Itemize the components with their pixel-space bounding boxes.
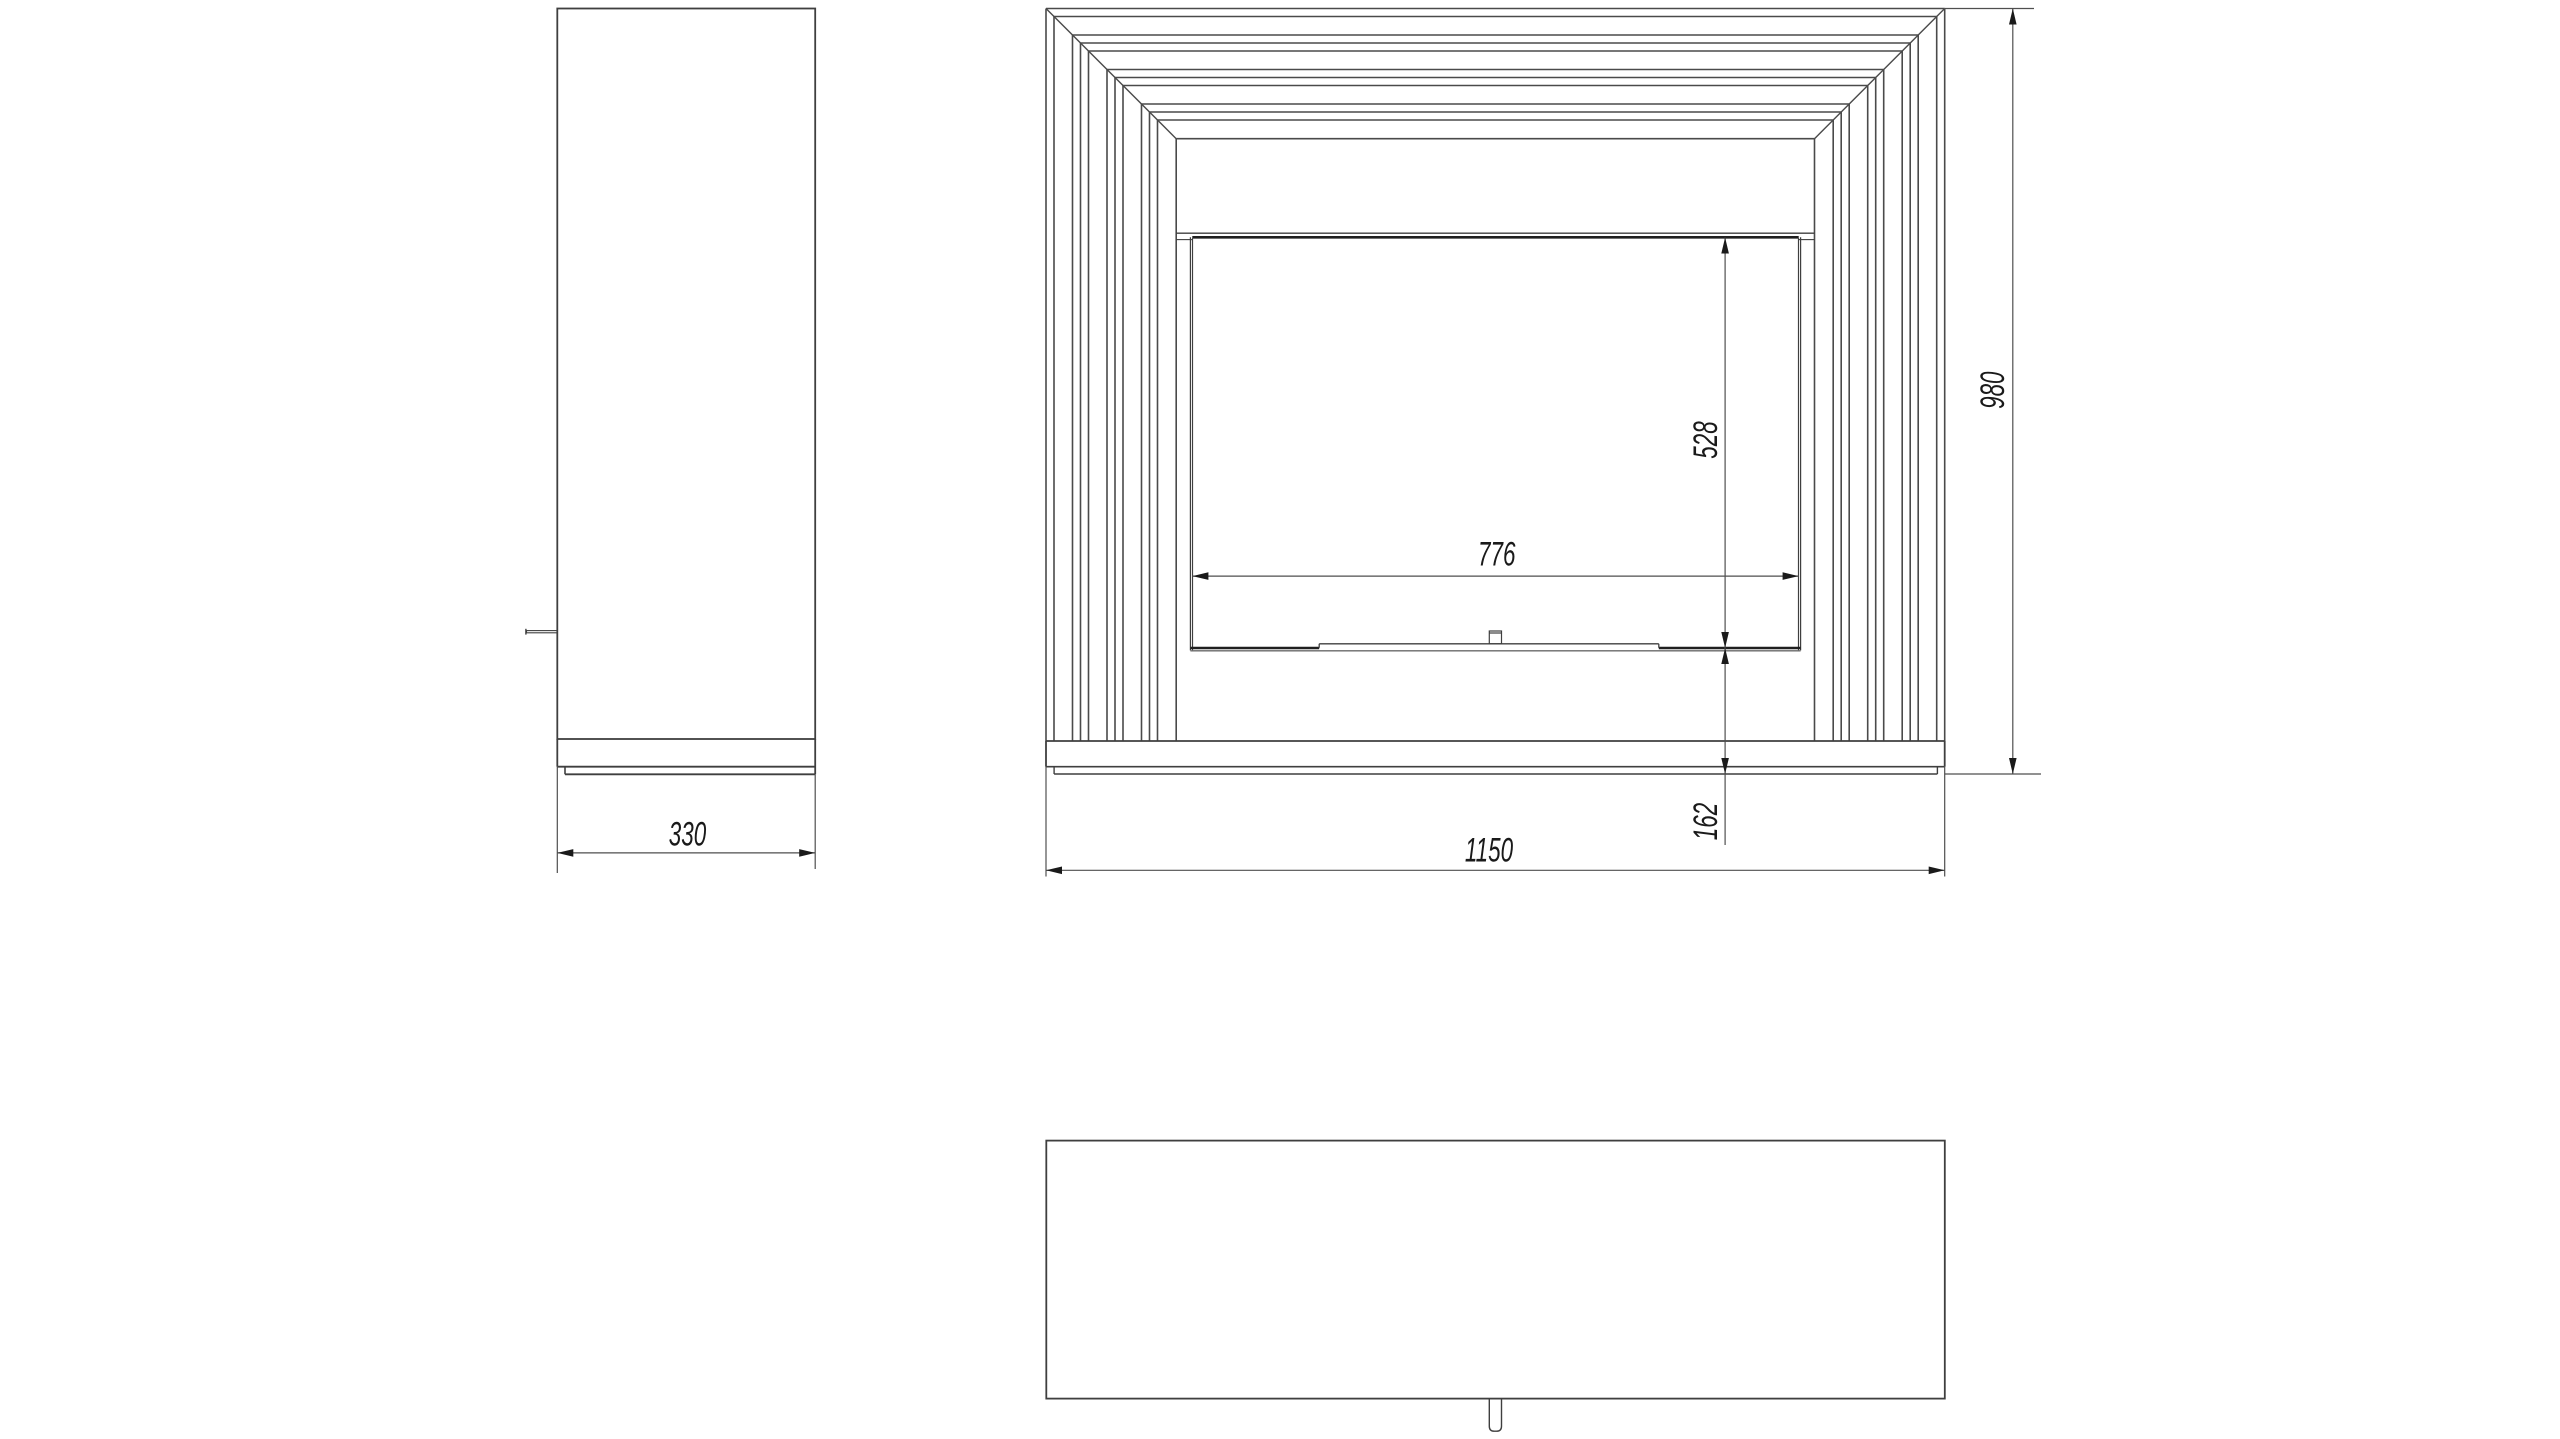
svg-text:162: 162 xyxy=(1687,803,1725,840)
svg-text:528: 528 xyxy=(1687,421,1725,458)
svg-text:776: 776 xyxy=(1478,536,1516,574)
svg-text:330: 330 xyxy=(669,816,706,854)
svg-text:1150: 1150 xyxy=(1465,832,1513,870)
svg-text:980: 980 xyxy=(1974,371,2012,408)
